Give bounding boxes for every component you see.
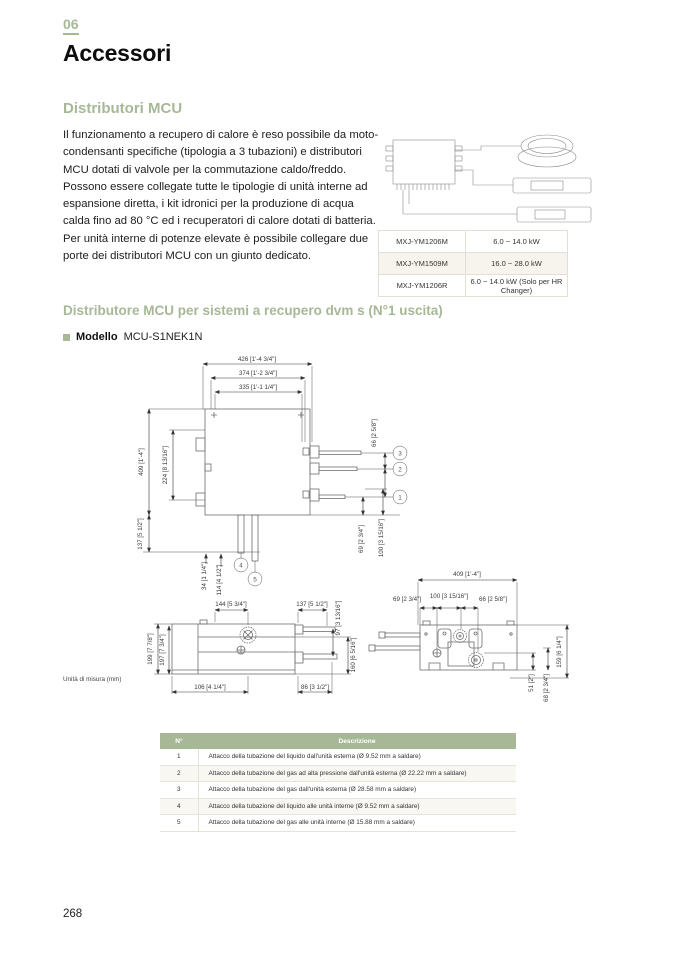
front-view-drawing: 144 [5 3/4"] 137 [5 1/2"] 97 [3 13/16"] … [147,600,357,694]
table-row: 2 Attacco della tubazione del gas ad alt… [160,765,516,782]
model-line: Modello MCU-S1NEK1N [63,331,202,343]
chapter-number: 06 [63,16,79,35]
legend-n: 1 [160,749,198,765]
callout-5: 5 [253,577,257,584]
dim-label-106: 106 [4 1/4"] [194,684,226,691]
dim-label-335: 335 [1'-1 1/4"] [239,384,277,391]
chapter-title: Accessori [63,40,171,67]
dim-label-160: 160 [6 5/16"] [350,637,357,672]
mcu-connection-diagram [385,126,605,228]
dim-label-137b: 137 [5 1/2"] [296,601,328,608]
dim-label-51: 51 [2"] [528,674,535,692]
model-cell: MXJ-YM1509M [379,253,466,275]
dim-label-114: 114 [4 1/2"] [216,564,223,595]
legend-header-row: N° Descrizione [160,733,516,749]
duct-unit-icon [513,178,591,193]
model-value: MCU-S1NEK1N [124,331,203,343]
dim-label-197: 197 [7 3/4"] [159,634,166,666]
table-row: 1 Attacco della tubazione del liquido da… [160,749,516,765]
page-number: 268 [63,908,82,920]
dim-label-144: 144 [5 3/4"] [215,601,247,608]
dim-label-69: 69 [2 3/4"] [358,525,365,553]
dim-label-159: 159 [6 1/4"] [556,636,563,668]
dim-label-97: 97 [3 13/16"] [335,600,342,635]
table-row: 5 Attacco della tubazione del gas alle u… [160,815,516,832]
square-bullet-icon [63,334,70,341]
callout-2: 2 [398,467,402,474]
intro-paragraph-2: Per unità interne di potenze elevate è p… [63,231,379,266]
legend-n: 3 [160,782,198,799]
callout-3: 3 [398,451,402,458]
dim-label-66: 66 [2 5/8"] [371,419,378,447]
table-row: MXJ-YM1509M 16.0 ~ 28.0 kW [379,253,568,275]
dim-label-374: 374 [1'-2 3/4"] [239,370,277,377]
dim-label-426: 426 [1'-4 3/4"] [238,356,276,363]
dim-label-66-side: 66 [2 5/8"] [479,596,507,603]
dim-label-137: 137 [5 1/2"] [137,518,144,550]
section-heading-distributori-mcu: Distributori MCU [63,100,182,117]
dim-label-409-side: 409 [1'-4"] [453,571,481,578]
catalog-page: 06 Accessori Distributori MCU Il funzion… [0,0,677,958]
dim-label-68: 68 [2 3/4"] [543,674,550,702]
legend-desc: Attacco della tubazione del gas ad alta … [198,765,516,782]
capacity-cell: 6.0 ~ 14.0 kW [466,231,568,253]
intro-paragraph-1: Il funzionamento a recupero di calore è … [63,127,379,231]
legend-desc: Attacco della tubazione del liquido alle… [198,798,516,815]
legend-n: 2 [160,765,198,782]
dim-label-69-side: 69 [2 3/4"] [393,596,421,603]
intro-paragraph: Il funzionamento a recupero di calore è … [63,127,379,265]
units-note: Unità di misura (mm) [63,676,121,683]
callout-1: 1 [398,495,402,502]
legend-desc: Attacco della tubazione del gas alle uni… [198,815,516,832]
dim-label-34: 34 [1 1/4"] [201,562,208,590]
dim-label-100: 100 [3 15/16"] [378,519,385,558]
model-label: Modello [76,331,118,343]
model-cell: MXJ-YM1206M [379,231,466,253]
dim-label-100-side: 100 [3 15/16"] [430,593,469,600]
table-row: MXJ-YM1206M 6.0 ~ 14.0 kW [379,231,568,253]
callout-4: 4 [239,563,243,570]
duct-unit-icon-2 [517,207,591,222]
section-heading-distributore-recupero: Distributore MCU per sistemi a recupero … [63,303,443,318]
legend-desc: Attacco della tubazione del liquido dall… [198,749,516,765]
technical-drawings: 3 2 1 4 5 426 [1'-4 3/4"] 374 [1'-2 3/4"… [55,352,615,714]
models-table: MXJ-YM1206M 6.0 ~ 14.0 kW MXJ-YM1509M 16… [378,230,568,297]
legend-header-desc: Descrizione [198,733,516,749]
table-row: MXJ-YM1206R 6.0 ~ 14.0 kW (Solo per HR C… [379,275,568,297]
table-row: 3 Attacco della tubazione del gas dall'u… [160,782,516,799]
legend-desc: Attacco della tubazione del gas dall'uni… [198,782,516,799]
side-view-drawing: 409 [1'-4"] 69 [2 3/4"] 100 [3 15/16"] 6… [369,571,569,702]
legend-n: 5 [160,815,198,832]
capacity-cell: 6.0 ~ 14.0 kW (Solo per HR Changer) [466,275,568,297]
capacity-cell: 16.0 ~ 28.0 kW [466,253,568,275]
mcu-box-icon [386,140,462,214]
legend-n: 4 [160,798,198,815]
dim-label-224: 224 [8 13/16"] [162,446,169,485]
legend-table: N° Descrizione 1 Attacco della tubazione… [160,733,516,832]
dim-label-409: 409 [1'-4"] [138,448,145,476]
model-cell: MXJ-YM1206R [379,275,466,297]
legend-header-n: N° [160,733,198,749]
cassette-unit-icon [518,135,576,167]
table-row: 4 Attacco della tubazione del liquido al… [160,798,516,815]
dim-label-199: 199 [7 7/8"] [147,633,154,665]
dim-label-86: 86 [3 1/2"] [301,684,329,691]
plan-view-drawing: 3 2 1 4 5 426 [1'-4 3/4"] 374 [1'-2 3/4"… [137,356,407,595]
